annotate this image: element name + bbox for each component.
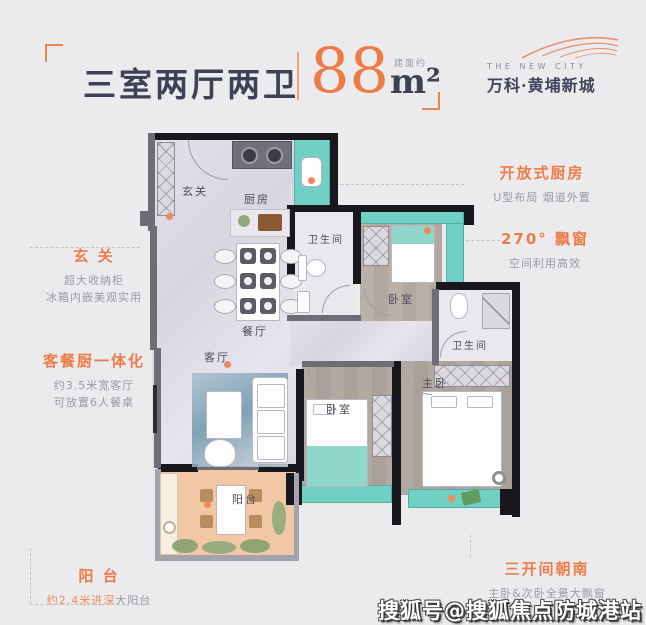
baywindow-master bbox=[408, 489, 504, 508]
coffee-machine bbox=[258, 214, 282, 231]
floor-hallway bbox=[290, 319, 436, 365]
wall-bedtop-left bbox=[353, 212, 361, 284]
room-label-bedtop: 卧室 bbox=[388, 291, 414, 307]
wall-above-bath2 bbox=[436, 282, 476, 290]
leader-line-entry bbox=[30, 247, 140, 248]
wall-mid-horizontal bbox=[287, 205, 473, 212]
wall-right-outer bbox=[512, 285, 520, 517]
dot-bedtop-window bbox=[424, 227, 431, 234]
annotation-balcony-line: 约2.4米进深大阳台 bbox=[24, 592, 174, 609]
room-label-dining: 餐厅 bbox=[242, 323, 268, 339]
sofa-cushion-1 bbox=[257, 384, 285, 408]
wall-left-outer-mid bbox=[150, 226, 157, 350]
room-label-bed2: 卧室 bbox=[326, 401, 352, 417]
baywindow-bedroom-2 bbox=[298, 485, 392, 503]
title-corner-bracket-bottomright bbox=[422, 92, 440, 110]
living-coffee-table bbox=[206, 391, 242, 439]
wall-kitchen-right bbox=[330, 133, 338, 211]
title-corner-bracket-topleft bbox=[45, 44, 63, 62]
annotation-balcony-gray: 大阳台 bbox=[115, 594, 151, 607]
annotation-balcony-accent: 约2.4米进深 bbox=[47, 594, 116, 607]
balcony-plant-2 bbox=[202, 541, 236, 554]
room-label-bath2: 卫生间 bbox=[452, 337, 488, 352]
balcony-plant-1 bbox=[172, 539, 198, 553]
wall-masterbay-corner-right bbox=[500, 489, 520, 515]
balcony-washer bbox=[163, 521, 176, 534]
brand-name-en: THE NEW CITY bbox=[487, 62, 587, 71]
baywindow-bedroom-top-side bbox=[446, 223, 464, 285]
title-divider bbox=[297, 52, 299, 100]
living-tv bbox=[153, 385, 157, 433]
bath2-toilet bbox=[450, 293, 468, 319]
sofa-cushion-3 bbox=[257, 436, 285, 460]
stove-burner-2 bbox=[266, 147, 283, 164]
place-setting bbox=[240, 273, 256, 289]
room-label-kitchen: 厨房 bbox=[244, 191, 270, 207]
dining-chair-2 bbox=[214, 274, 236, 289]
master-pillow-2 bbox=[467, 396, 493, 408]
sofa-cushion-2 bbox=[257, 410, 285, 434]
bed2-blanket bbox=[307, 446, 367, 486]
wall-balcony-bottom bbox=[155, 555, 299, 561]
master-bed bbox=[422, 391, 502, 487]
area-value: 88 bbox=[310, 42, 389, 100]
brand-name-cn: 万科·黄埔新城 bbox=[487, 72, 596, 96]
page-title: 三室两厅两卫 bbox=[83, 58, 299, 106]
bath1-toilet-bowl bbox=[306, 259, 326, 277]
floor-plan: 玄关 厨房 卫生间 卧室 餐厅 客厅 卫生间 主卧 卧室 阳台 bbox=[140, 133, 524, 591]
watermark: 搜狐号@搜狐焦点防城港站 bbox=[378, 595, 642, 625]
kitchen-stove bbox=[232, 141, 292, 169]
room-label-master: 主卧 bbox=[422, 375, 448, 391]
bath2-shower bbox=[482, 293, 510, 329]
balcony-chair-4 bbox=[249, 515, 262, 528]
leader-line-balcony-v bbox=[30, 548, 31, 604]
balcony-plant-3 bbox=[240, 539, 270, 553]
master-speaker bbox=[492, 471, 506, 485]
room-label-balcony: 阳台 bbox=[232, 491, 258, 507]
wall-master-bedroom2-divider bbox=[392, 361, 401, 525]
dot-kitchen-sink bbox=[308, 177, 315, 184]
bath1-sink bbox=[297, 291, 310, 313]
dot-entry bbox=[166, 213, 173, 220]
place-setting bbox=[240, 298, 256, 314]
stove-burner-1 bbox=[241, 147, 258, 164]
place-setting bbox=[260, 298, 276, 314]
balcony-chair-2 bbox=[200, 515, 213, 528]
living-armchair bbox=[204, 439, 236, 467]
kitchen-plant bbox=[238, 215, 250, 227]
dining-chair-1 bbox=[214, 249, 236, 264]
brand-swoosh-icon bbox=[520, 26, 620, 66]
place-setting bbox=[260, 248, 276, 264]
place-setting bbox=[260, 273, 276, 289]
wall-bath2-left bbox=[432, 289, 439, 365]
dot-master-bay bbox=[448, 495, 455, 502]
dining-table bbox=[236, 243, 280, 321]
room-label-bath1: 卫生间 bbox=[308, 231, 344, 246]
living-sofa bbox=[252, 377, 288, 463]
wall-balcony-right bbox=[294, 473, 299, 561]
entry-wardrobe bbox=[157, 142, 175, 216]
wall-left-notch bbox=[140, 211, 155, 226]
wall-bath1-bottom bbox=[287, 315, 361, 321]
leader-line-balcony-h bbox=[30, 604, 140, 605]
place-setting bbox=[240, 248, 256, 264]
wall-top bbox=[152, 133, 338, 140]
room-label-living: 客厅 bbox=[204, 349, 230, 365]
master-pillow-1 bbox=[431, 396, 457, 408]
balcony-plant-4 bbox=[272, 501, 286, 535]
bedtop-wardrobe bbox=[363, 226, 389, 266]
bed2-wardrobe bbox=[372, 395, 392, 457]
wall-bedtop-corner bbox=[464, 205, 474, 225]
dining-chair-3 bbox=[214, 299, 236, 314]
room-label-entry: 玄关 bbox=[182, 183, 208, 199]
dot-balcony bbox=[204, 501, 211, 508]
